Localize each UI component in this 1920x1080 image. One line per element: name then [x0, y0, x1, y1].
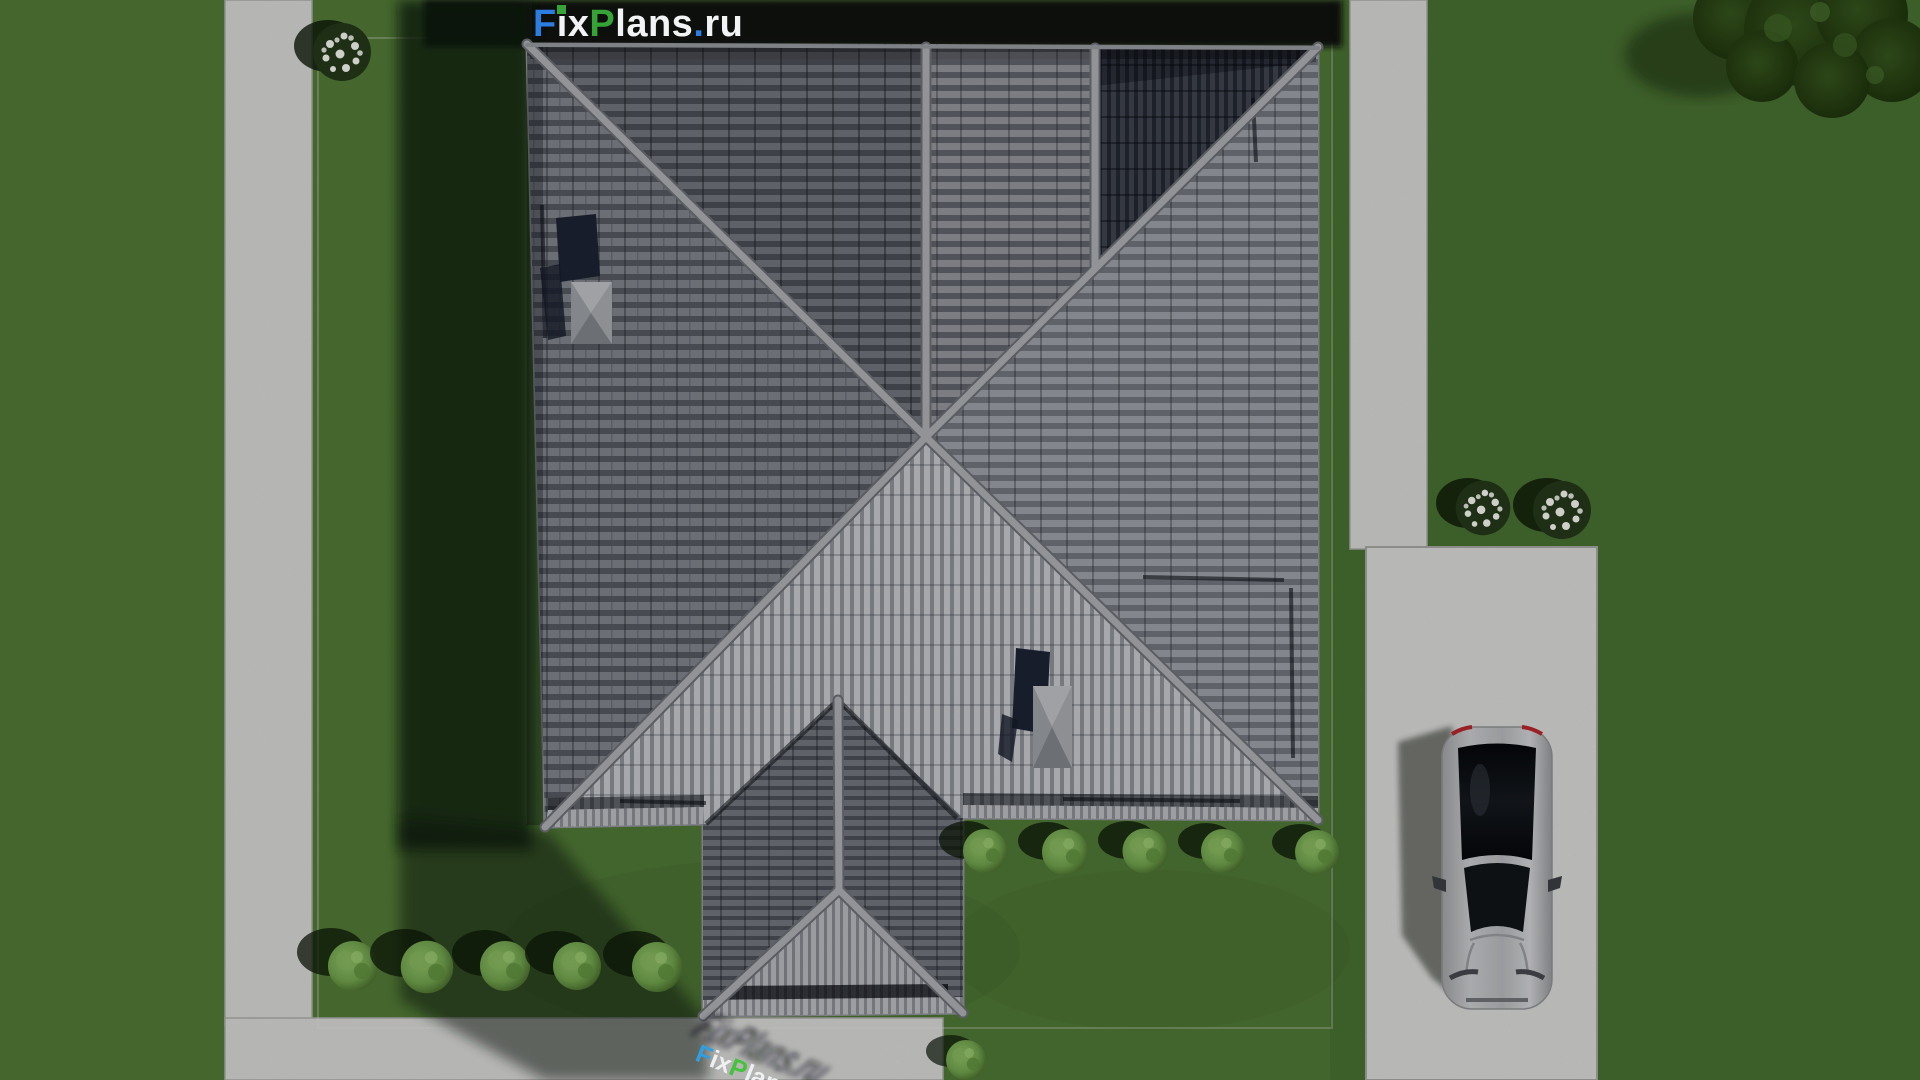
scene-canvas: FixPlans.ru FixPlans.ru FixPlans.ru [0, 0, 1920, 1080]
brand-logo: FixPlans.ru [533, 3, 743, 45]
aerial-render-scene: FixPlans.ru FixPlans.ru FixPlans.ru [0, 0, 1920, 1080]
noise-texture-overlay [0, 0, 1920, 1080]
logo-i-dot-accent [557, 5, 566, 14]
